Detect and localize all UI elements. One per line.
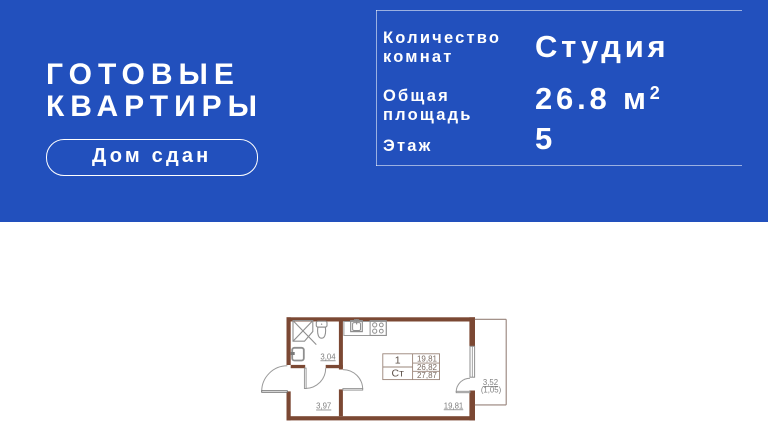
svg-text:3,04: 3,04: [320, 352, 336, 361]
svg-text:1: 1: [395, 354, 401, 366]
svg-text:(1,05): (1,05): [481, 386, 502, 395]
svg-text:Ст: Ст: [391, 368, 404, 380]
svg-text:27,87: 27,87: [417, 371, 438, 380]
svg-text:19,81: 19,81: [444, 401, 464, 410]
svg-text:3,97: 3,97: [316, 402, 331, 411]
